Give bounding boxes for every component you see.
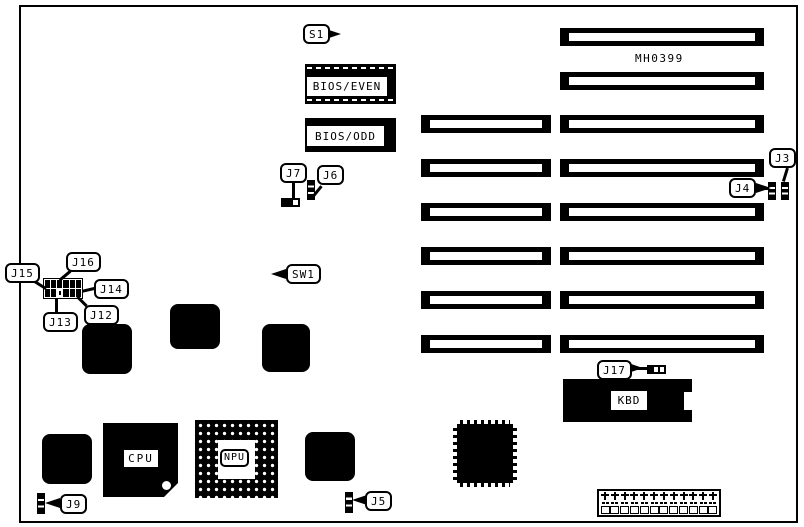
expansion-slot-short <box>421 203 551 221</box>
callout-j9: J9 <box>60 494 87 514</box>
chip-cpu: CPU <box>103 423 178 497</box>
power-pin <box>650 492 658 500</box>
jumper-pin <box>51 289 56 297</box>
expansion-slot <box>560 115 764 133</box>
power-pin-pad <box>640 506 649 514</box>
slot-contact-strip <box>569 340 755 348</box>
jumper-j9 <box>37 493 45 514</box>
callout-j17: J17 <box>597 360 632 380</box>
expansion-slot <box>560 247 764 265</box>
power-pin <box>630 492 638 500</box>
power-pin-pad <box>679 506 688 514</box>
jumper-open-pin <box>293 200 298 205</box>
slot-contact-strip <box>569 252 755 260</box>
power-pin-pad <box>708 506 717 514</box>
power-pin-dash <box>670 502 677 504</box>
power-pin-pad <box>601 506 610 514</box>
jumper-open-pin <box>660 367 664 372</box>
callout-j5: J5 <box>365 491 392 511</box>
power-pin-column <box>650 492 658 514</box>
power-pin-column <box>670 492 678 514</box>
slot-contact-strip <box>569 120 755 128</box>
power-pin-dash <box>680 502 687 504</box>
jumper-pin <box>45 289 50 297</box>
callout-j14: J14 <box>94 279 129 299</box>
jumper-j7 <box>281 198 300 207</box>
power-pin-pad <box>689 506 698 514</box>
power-pin-pad <box>620 506 629 514</box>
callout-j4: J4 <box>729 178 756 198</box>
power-pin <box>689 492 697 500</box>
expansion-slot <box>560 335 764 353</box>
jumper-pin <box>70 280 75 288</box>
expansion-slot <box>560 72 764 90</box>
kbd-notch <box>684 392 692 410</box>
power-pin-column <box>611 492 619 514</box>
power-pin-pad <box>699 506 708 514</box>
sw1-pointer-arrow <box>271 269 286 279</box>
jumper-j3 <box>781 182 789 200</box>
power-pin-column <box>689 492 697 514</box>
j7-leader-line <box>292 182 295 199</box>
pin1-dot <box>162 481 171 490</box>
expansion-slot-short <box>421 335 551 353</box>
expansion-slot <box>560 159 764 177</box>
slot-contact-strip <box>430 252 542 260</box>
power-pin-dash <box>690 502 697 504</box>
power-pin <box>699 492 707 500</box>
expansion-slot <box>560 203 764 221</box>
expansion-slot-short <box>421 159 551 177</box>
square-chip <box>262 324 310 372</box>
power-pin-dash <box>641 502 648 504</box>
expansion-slot-short <box>421 291 551 309</box>
jumper-open-pin <box>654 367 658 372</box>
power-pin-pad <box>610 506 619 514</box>
power-pin-pad <box>650 506 659 514</box>
j4-pointer-arrow <box>756 183 771 193</box>
power-pin-dash <box>660 502 667 504</box>
jumper-pin <box>70 289 75 297</box>
power-pin-column <box>709 492 717 514</box>
jumper-pin <box>63 289 68 297</box>
callout-j13: J13 <box>43 312 78 332</box>
power-connector <box>597 489 721 517</box>
power-pin-dash <box>631 502 638 504</box>
chip-bios-even: BIOS/EVEN <box>305 64 396 104</box>
slot-contact-strip <box>569 296 755 304</box>
power-pin <box>601 492 609 500</box>
expansion-slot-short <box>421 247 551 265</box>
jumper-j17 <box>647 365 666 374</box>
square-chip <box>42 434 92 484</box>
qfp-chip <box>453 420 517 487</box>
socket-dash-line <box>307 99 394 101</box>
power-pin-column <box>601 492 609 514</box>
power-pin-dash <box>709 502 716 504</box>
expansion-slot <box>560 291 764 309</box>
callout-j7: J7 <box>280 163 307 183</box>
power-pin <box>621 492 629 500</box>
socket-dash-line <box>307 67 394 69</box>
chip-bios-odd: BIOS/ODD <box>305 118 396 152</box>
slot-contact-strip <box>430 164 542 172</box>
power-pin-column <box>640 492 648 514</box>
npu-socket: NPU <box>195 420 278 498</box>
chip-label-bios-odd: BIOS/ODD <box>307 126 384 146</box>
slot-contact-strip <box>569 164 755 172</box>
callout-j3: J3 <box>769 148 796 168</box>
callout-s1: S1 <box>303 24 330 44</box>
chip-kbd: KBD <box>563 379 692 422</box>
qfp-body <box>457 424 513 483</box>
chip-label-bios-even: BIOS/EVEN <box>307 77 387 96</box>
slot-contact-strip <box>430 340 542 348</box>
slot-contact-strip <box>569 208 755 216</box>
slot-contact-strip <box>430 296 542 304</box>
motherboard-diagram: MH0399 BIOS/EVEN BIOS/ODD S1 J7 J6 J3 J4 <box>0 0 804 527</box>
square-chip <box>170 304 220 349</box>
part-number: MH0399 <box>635 52 684 65</box>
power-pin-column <box>680 492 688 514</box>
power-pin-column <box>621 492 629 514</box>
jumper-open-pin <box>57 289 62 297</box>
square-chip <box>82 324 132 374</box>
power-pin-dash <box>611 502 618 504</box>
callout-j12: J12 <box>84 305 119 325</box>
power-pin-pad <box>669 506 678 514</box>
power-pin <box>709 492 717 500</box>
j13-leader-line <box>55 298 58 313</box>
j9-pointer-arrow <box>45 498 60 508</box>
power-pin <box>640 492 648 500</box>
power-pin-dash <box>602 502 609 504</box>
power-pin-column <box>660 492 668 514</box>
expansion-slot-short <box>421 115 551 133</box>
slot-contact-strip <box>430 120 542 128</box>
power-pin-pad <box>630 506 639 514</box>
slot-contact-strip <box>569 77 755 85</box>
power-pin-dash <box>621 502 628 504</box>
chip-label-cpu: CPU <box>124 450 158 467</box>
callout-j16: J16 <box>66 252 101 272</box>
callout-j15: J15 <box>5 263 40 283</box>
power-pin <box>680 492 688 500</box>
jumper-pin <box>63 280 68 288</box>
chip-label-kbd: KBD <box>611 391 647 410</box>
power-pin <box>660 492 668 500</box>
power-pin-column <box>630 492 638 514</box>
power-pin-dash <box>700 502 707 504</box>
power-pin <box>670 492 678 500</box>
expansion-slot <box>560 28 764 46</box>
jumper-pin <box>51 280 56 288</box>
power-pin-column <box>699 492 707 514</box>
power-pin-pad <box>659 506 668 514</box>
chip-label-npu: NPU <box>220 449 249 467</box>
power-pin <box>611 492 619 500</box>
callout-sw1: SW1 <box>286 264 321 284</box>
npu-socket-center: NPU <box>218 440 255 479</box>
slot-contact-strip <box>569 33 755 41</box>
slot-contact-strip <box>430 208 542 216</box>
power-pin-dash <box>651 502 658 504</box>
callout-j6: J6 <box>317 165 344 185</box>
square-chip <box>305 432 355 481</box>
jumper-pin <box>76 280 81 288</box>
